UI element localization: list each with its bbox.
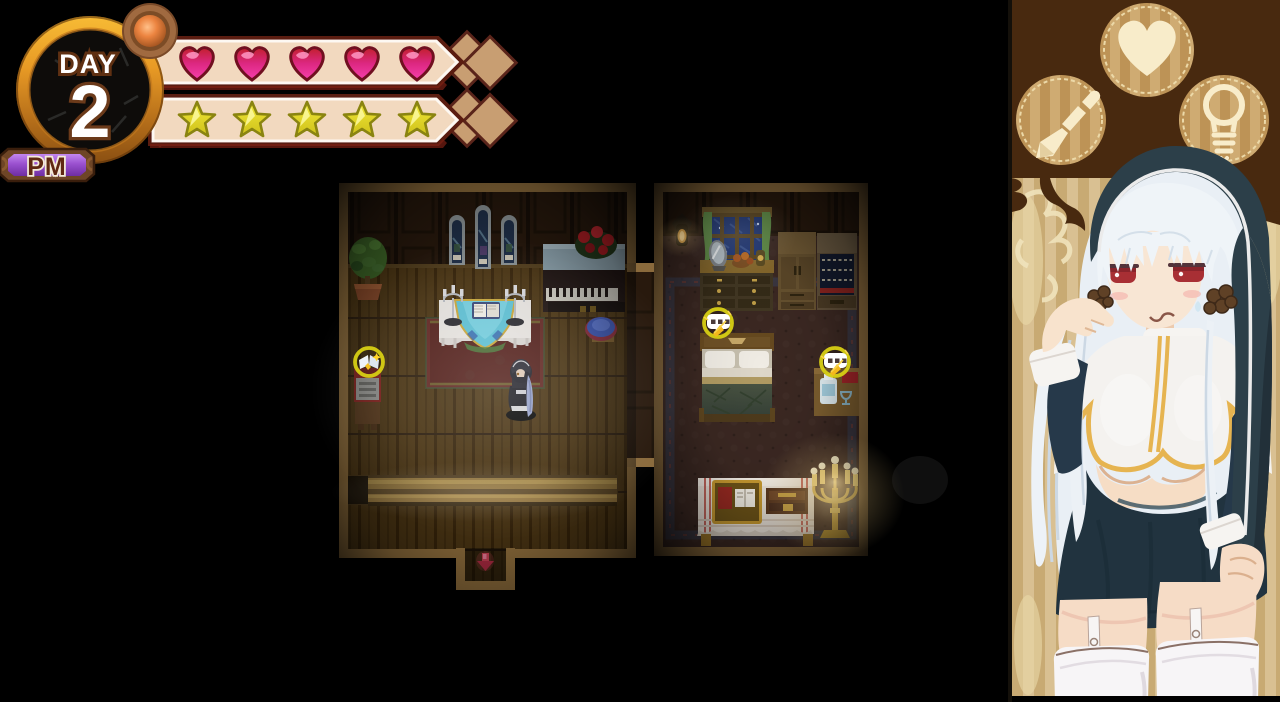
- svg-text:PM: PM: [27, 153, 67, 181]
- svg-text:2: 2: [69, 70, 110, 153]
